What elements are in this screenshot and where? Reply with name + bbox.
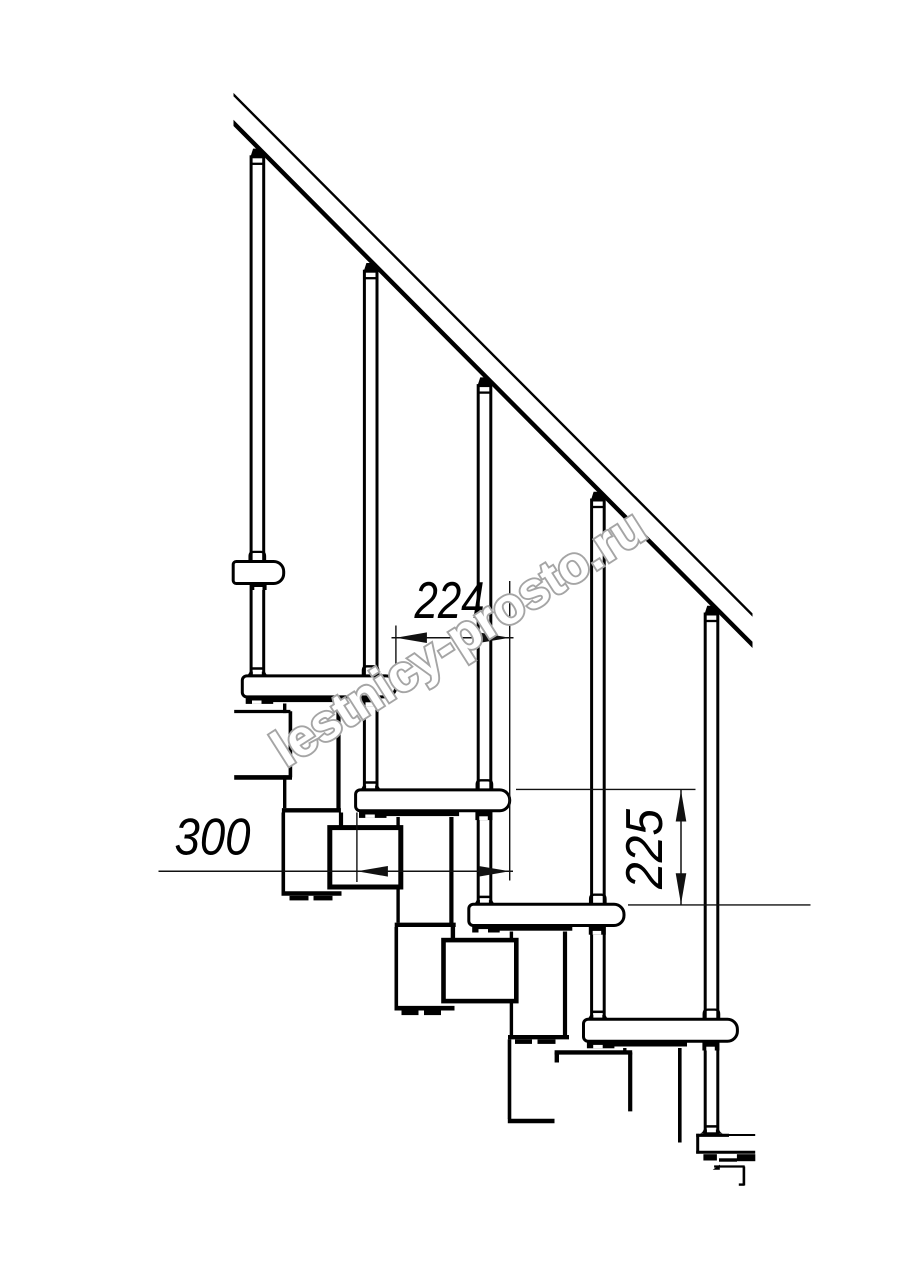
svg-text:300: 300 [175, 809, 251, 867]
svg-text:225: 225 [616, 808, 674, 890]
